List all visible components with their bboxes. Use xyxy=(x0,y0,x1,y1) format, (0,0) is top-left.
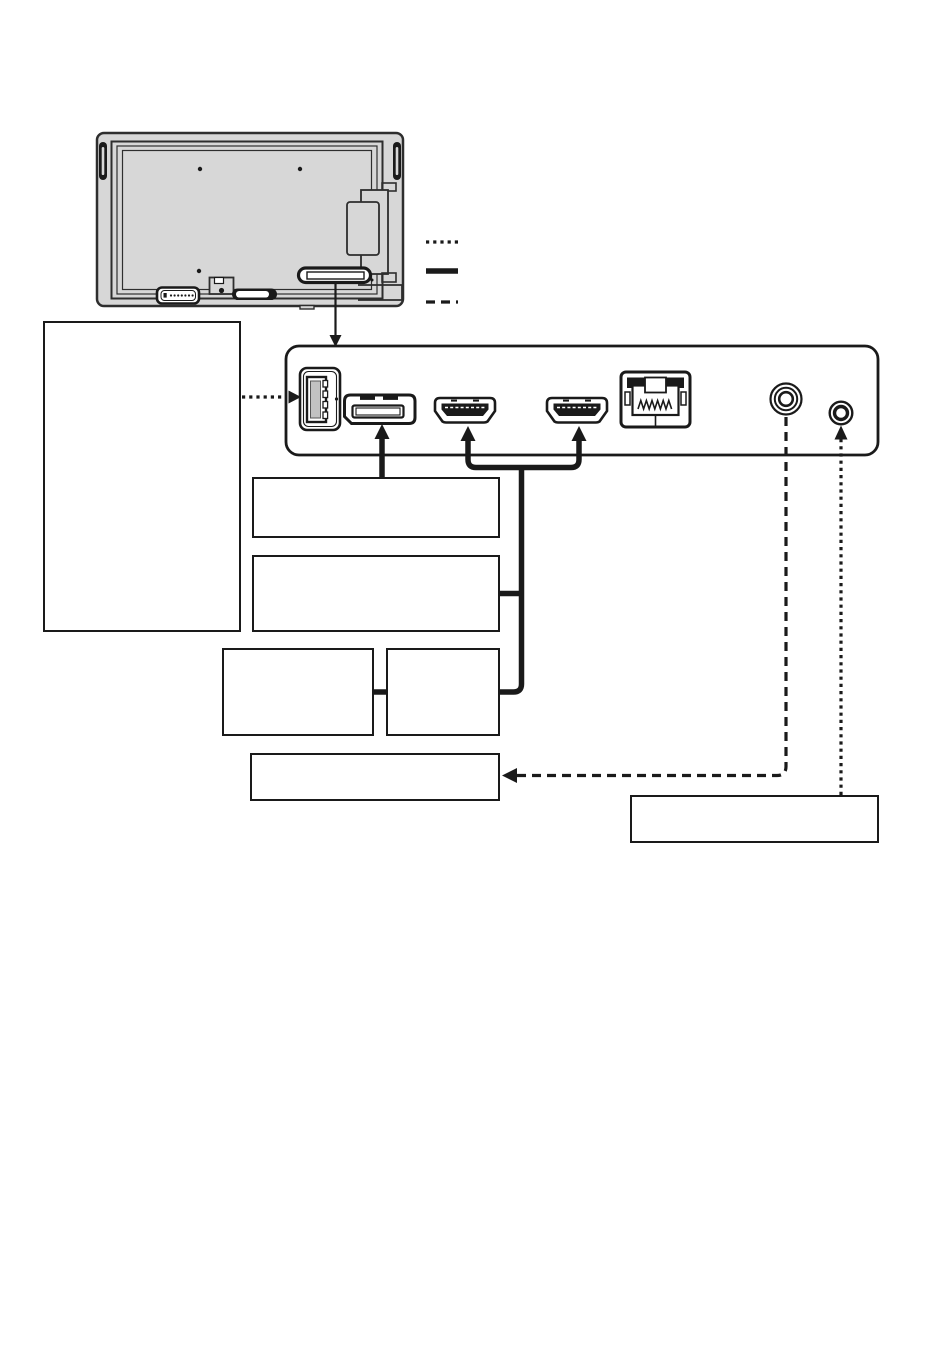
bottom-oval-slot xyxy=(232,289,277,301)
bottom-bracket xyxy=(210,278,234,295)
screw-hole-icon xyxy=(198,167,202,171)
audio-out-dashed-arrow xyxy=(502,417,786,783)
lan-port-icon xyxy=(621,372,690,427)
bottom-dsub-connector xyxy=(157,288,199,304)
callout-box-hdmi-left xyxy=(222,648,374,736)
callout-box-hdmi-right xyxy=(386,648,500,736)
screw-hole-icon xyxy=(197,269,201,273)
usb-dotted-arrow xyxy=(242,391,301,404)
callout-box-displayport-source xyxy=(252,477,500,538)
hdmi-port-1-icon xyxy=(435,398,495,423)
audio-jack-large-icon xyxy=(771,384,802,415)
audio-jack-small-icon xyxy=(830,402,853,425)
audio-in-dotted-arrow xyxy=(835,426,848,796)
speaker-box xyxy=(347,202,379,255)
callout-box-audio-input xyxy=(630,795,879,843)
usb-port-icon xyxy=(300,368,340,430)
note-box-large xyxy=(43,321,241,632)
callout-box-audio-output xyxy=(250,753,500,801)
callout-box-hdmi-source-main xyxy=(252,555,500,632)
line-style-legend xyxy=(426,242,458,302)
highlighted-terminal-area xyxy=(299,268,371,283)
display-rear-view xyxy=(97,133,403,309)
manual-diagram-page xyxy=(0,0,950,1364)
hdmi-port-2-icon xyxy=(547,398,607,423)
displayport-port-icon xyxy=(345,395,416,424)
screw-hole-icon xyxy=(298,167,302,171)
